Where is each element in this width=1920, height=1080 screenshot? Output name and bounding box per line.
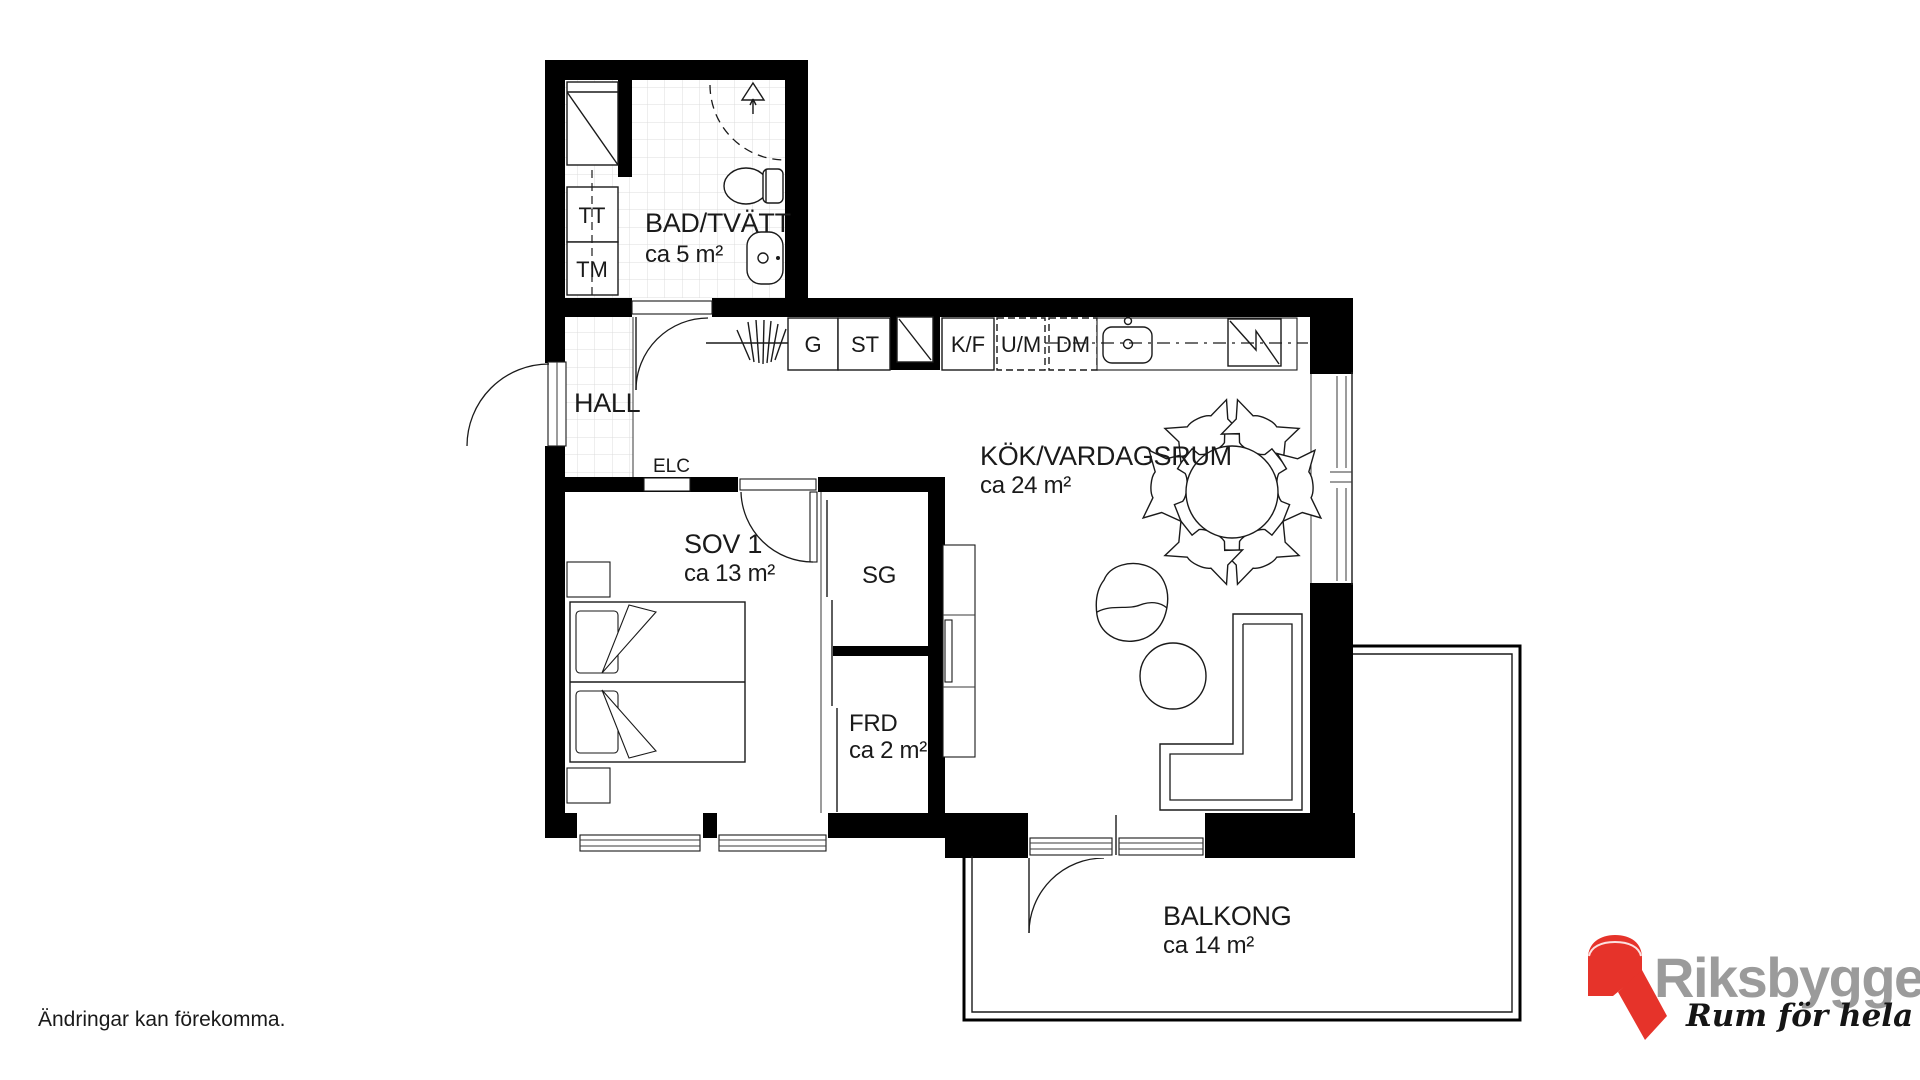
hall-bedroom-wall — [545, 477, 738, 492]
cabinet-g-label: G — [804, 332, 821, 357]
bathroom-area: ca 5 m² — [645, 241, 723, 268]
bottom-wall-e — [1205, 813, 1355, 858]
toilet — [724, 168, 783, 204]
bedroom-door-leaf — [810, 492, 817, 562]
cabinet-st-label: ST — [851, 332, 879, 357]
shower-wall-stub — [618, 78, 632, 177]
coat-hooks — [706, 320, 792, 364]
hall-name: HALL — [574, 388, 641, 418]
kitchen-living-area: ca 24 m² — [980, 472, 1071, 499]
bottom-wall-a — [545, 813, 577, 838]
tv-bench — [943, 545, 975, 757]
balcony-door-swing — [1029, 858, 1104, 933]
cabinet-g: G — [788, 318, 838, 370]
east-window — [1311, 372, 1353, 585]
bathroom-doorway — [632, 301, 712, 314]
left-wall-lower — [545, 446, 565, 836]
tv — [945, 620, 952, 682]
pillow-top — [576, 611, 618, 673]
bedroom-area: ca 13 m² — [684, 560, 775, 587]
fridge-freezer-label: K/F — [951, 332, 985, 357]
side-table — [1140, 643, 1206, 709]
balcony-door-window — [1028, 813, 1205, 858]
armchair — [1096, 564, 1167, 642]
hall-bathroom-wall — [545, 298, 632, 317]
shower — [567, 82, 618, 165]
storage-name: FRD — [849, 710, 897, 737]
fridge-freezer: K/F — [942, 318, 994, 370]
bedroom-window-1 — [577, 813, 703, 852]
sg-frd-divider-wall — [833, 646, 930, 656]
kitchen-living-name: KÖK/VARDAGSRUM — [980, 441, 1232, 471]
bedroom-furniture — [567, 562, 745, 803]
entry-door-swing — [467, 364, 549, 446]
kitchen-cabinets: G ST K/F U/M DM — [706, 318, 1308, 371]
kitchen-bedroom-wall — [818, 477, 945, 492]
bathroom-name: BAD/TVÄTT — [645, 208, 791, 238]
sliding-wardrobe-name: SG — [862, 562, 896, 589]
left-wall-upper — [545, 60, 565, 363]
dining-table-set — [1143, 400, 1321, 585]
cabinet-st: ST — [838, 318, 890, 370]
bedroom-doorway — [740, 479, 816, 490]
balcony-area: ca 14 m² — [1163, 932, 1254, 959]
storage-area: ca 2 m² — [849, 737, 927, 764]
bathroom-right-wall — [785, 60, 808, 317]
nightstand-top — [567, 562, 610, 597]
hall-door-swing — [636, 318, 708, 390]
floor-plan-canvas: TT TM — [0, 0, 1920, 1080]
disclaimer-text: Ändringar kan förekomma. — [38, 1008, 285, 1031]
brand-logo: Riksbyggen Rum för hela livet — [1588, 935, 1920, 1040]
bathroom-sink — [747, 232, 783, 284]
elc-label: ELC — [653, 456, 690, 477]
bottom-wall-d — [945, 813, 1028, 858]
bathroom-top-wall — [545, 60, 808, 80]
balcony-name: BALKONG — [1163, 901, 1291, 931]
counter-sink-section — [1097, 318, 1297, 371]
east-wall-upper — [1310, 298, 1353, 374]
oven-micro-label: U/M — [1001, 332, 1041, 357]
kitchen-top-wall — [712, 298, 1353, 317]
brand-tagline: Rum för hela livet — [1685, 998, 1920, 1034]
bedroom-window-2 — [717, 813, 828, 852]
double-bed — [570, 602, 745, 762]
bedroom-name: SOV 1 — [684, 529, 762, 559]
electrical-cabinet — [644, 478, 690, 491]
dishwasher-label: DM — [1056, 332, 1090, 357]
dishwasher: DM — [1049, 318, 1097, 370]
bottom-wall-c — [828, 813, 945, 838]
nightstand-bottom — [567, 768, 610, 803]
bottom-wall-b — [703, 813, 717, 838]
kitchen-sink — [1103, 327, 1152, 363]
oven-micro: U/M — [997, 318, 1045, 370]
